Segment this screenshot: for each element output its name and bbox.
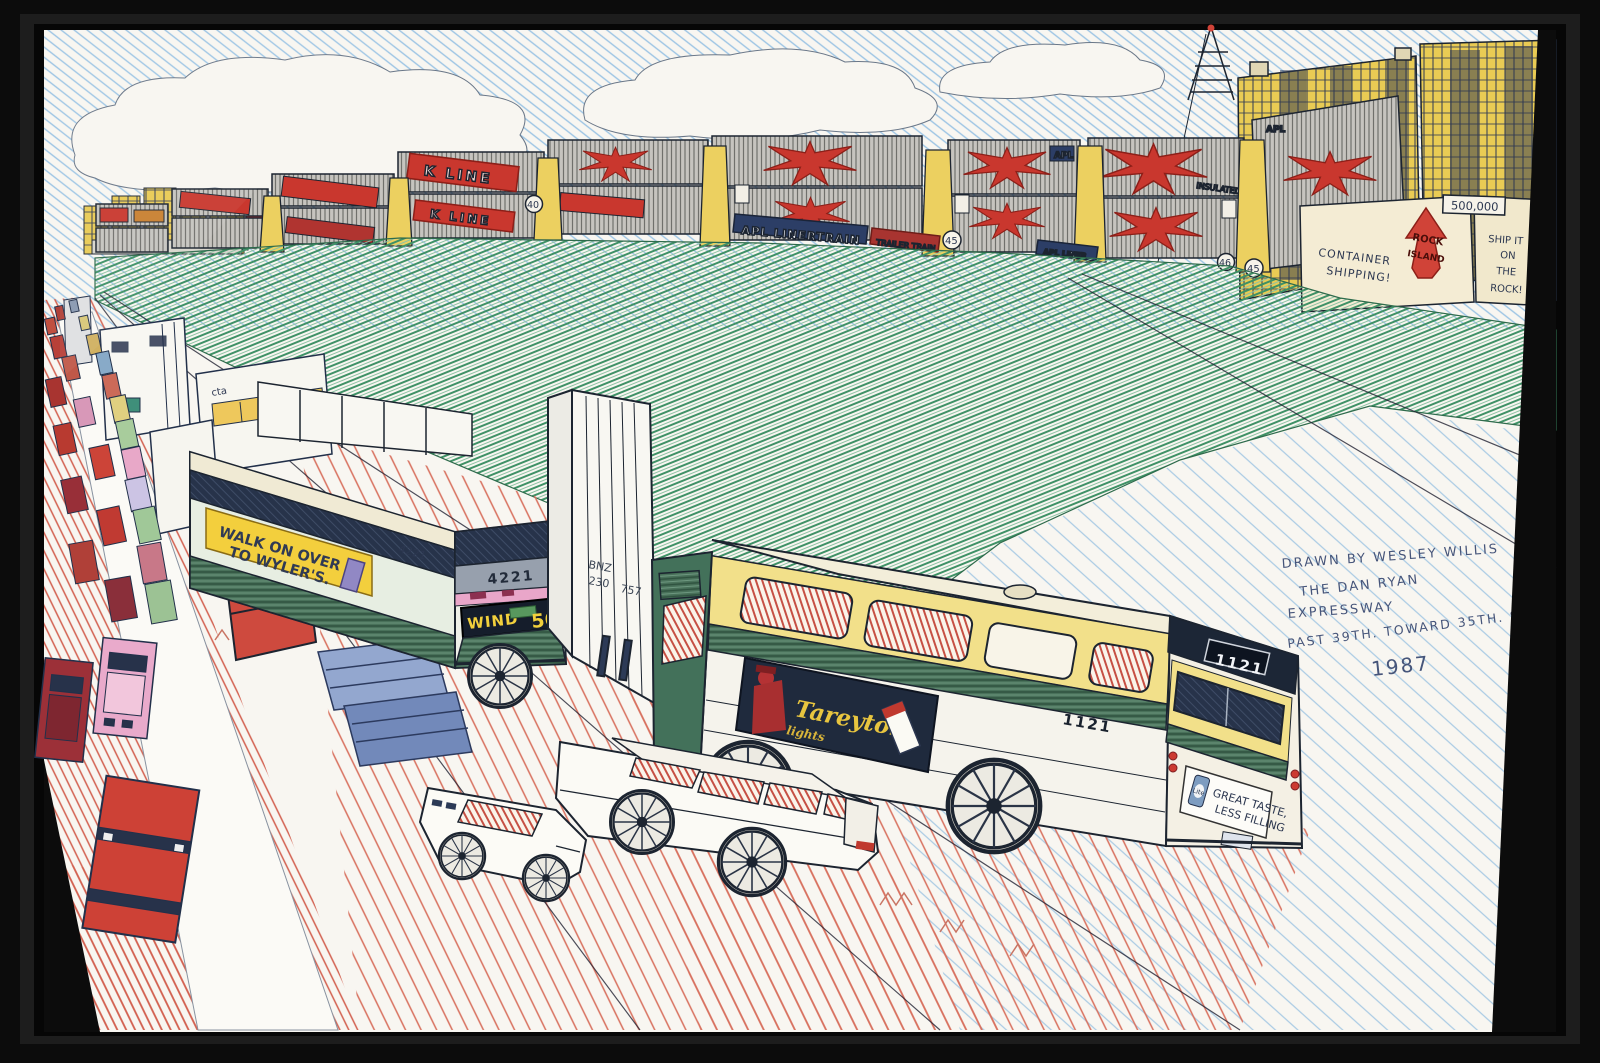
car-number-45a: 45 [945, 236, 958, 247]
apl-container-mark: APL [1054, 151, 1074, 161]
ship-it-text-4: ROCK! [1490, 283, 1523, 296]
topdown-pink-car [93, 638, 157, 739]
ship-it-text-3: THE [1495, 266, 1517, 278]
framed-drawing-photo: K LINE K LINE APL INSULATED INSULATED AP [0, 0, 1600, 1063]
container-shipping-shed: CONTAINER SHIPPING! ROCK ISLAND SHIP IT … [1300, 195, 1548, 312]
topdown-dark-red-car [35, 658, 93, 762]
apl-corner-mark: APL [1266, 125, 1286, 135]
car-number-40: 40 [527, 200, 539, 211]
tower-beacon-icon [1208, 25, 1215, 32]
ship-it-text-2: ON [1500, 250, 1516, 262]
tonnage-sign: 500,000 [1451, 198, 1499, 214]
